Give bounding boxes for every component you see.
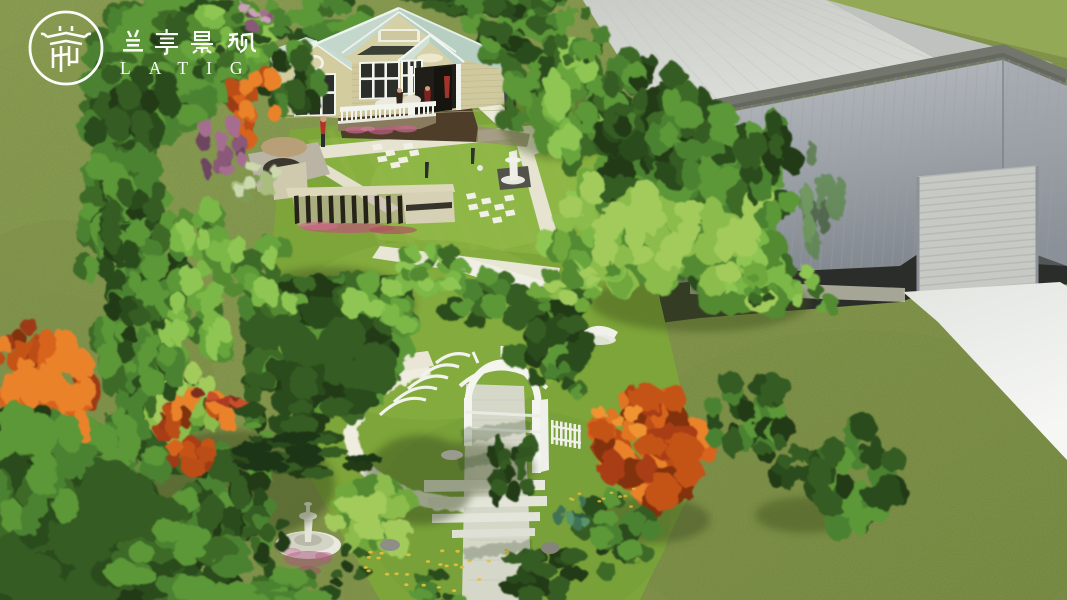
svg-text:LATIG: LATIG: [120, 58, 261, 78]
